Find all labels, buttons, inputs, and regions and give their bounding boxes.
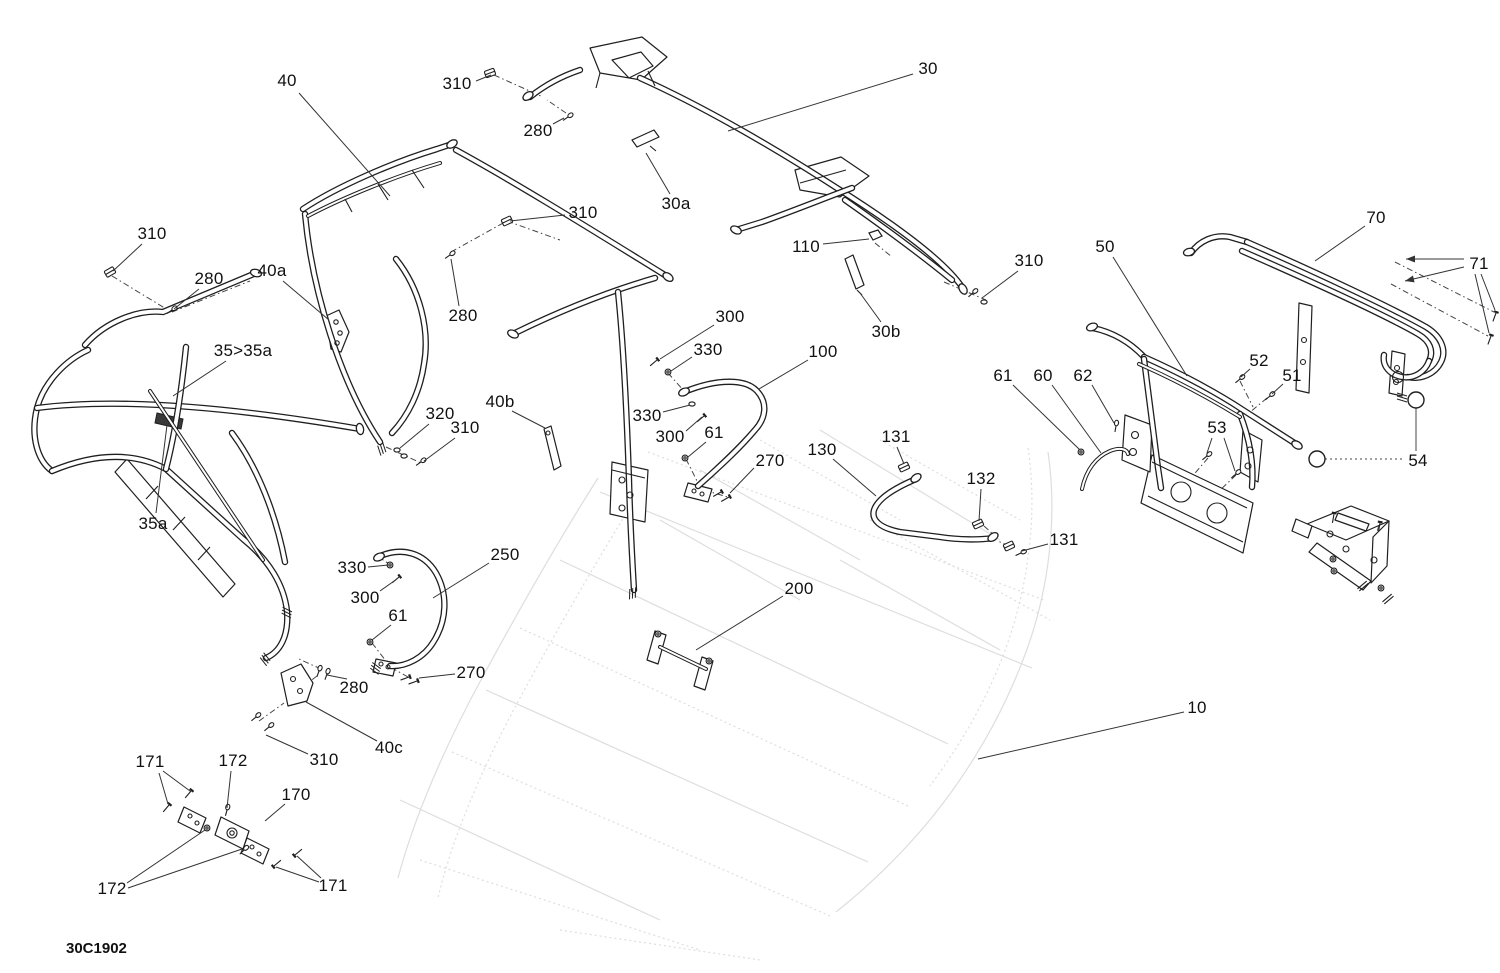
callout-170: 170	[282, 785, 311, 805]
leader-line	[476, 75, 491, 81]
callout-62: 62	[1073, 366, 1092, 386]
callout-310: 310	[310, 750, 339, 770]
callout-53: 53	[1207, 418, 1226, 438]
callout-30: 30	[918, 59, 937, 79]
leader-line	[730, 468, 754, 493]
callout-54: 54	[1408, 451, 1427, 471]
nut-fastener	[1078, 449, 1084, 455]
callout-51: 51	[1282, 366, 1301, 386]
callout-30a: 30a	[662, 194, 691, 214]
washer-fastener	[394, 448, 400, 452]
callout-300: 300	[656, 427, 685, 447]
leader-line	[368, 565, 388, 567]
callout-35-35a: 35>35a	[214, 341, 272, 361]
callout-280: 280	[524, 121, 553, 141]
callout-310: 310	[138, 224, 167, 244]
nut-fastener	[1331, 568, 1337, 574]
nut-fastener	[706, 658, 712, 664]
nut-fastener	[665, 369, 671, 375]
leader-line	[671, 357, 692, 371]
nut-fastener	[1378, 585, 1384, 591]
leader-line	[1405, 267, 1464, 281]
leader-line	[978, 712, 1184, 759]
leader-line	[163, 771, 190, 791]
bolt-fastener	[1230, 469, 1242, 480]
callout-270: 270	[457, 663, 486, 683]
leader-arrowhead	[1405, 276, 1415, 283]
bolt-fastener	[323, 668, 331, 680]
callout-270: 270	[756, 451, 785, 471]
leader-line	[979, 489, 981, 521]
callout-300: 300	[716, 307, 745, 327]
callout-330: 330	[338, 558, 367, 578]
callout-61: 61	[993, 366, 1012, 386]
leader-line	[1475, 274, 1489, 333]
leader-arrowhead	[1406, 256, 1415, 263]
leader-line	[419, 674, 455, 678]
bolt-fastener	[562, 112, 574, 122]
callout-131: 131	[882, 427, 911, 447]
callout-10: 10	[1187, 698, 1206, 718]
parts-diagram-page: 30C1902 403102803030a31011031030b2803102…	[0, 0, 1500, 973]
screw-fastener	[408, 678, 419, 686]
clamp-fastener	[1003, 541, 1015, 551]
leader-line	[1272, 384, 1283, 394]
callout-310: 310	[443, 74, 472, 94]
callout-35a: 35a	[139, 514, 168, 534]
callout-200: 200	[785, 579, 814, 599]
cap-54	[1309, 451, 1325, 467]
ghost-chassis	[398, 430, 1052, 960]
leader-line	[451, 259, 459, 306]
bolt-fastener	[1113, 420, 1119, 432]
leader-line	[297, 856, 321, 878]
leader-line	[663, 405, 690, 412]
tube-frames	[34, 70, 1443, 669]
pin-fastener	[1383, 594, 1394, 604]
callout-280: 280	[340, 678, 369, 698]
callout-310: 310	[1015, 251, 1044, 271]
callout-280: 280	[449, 306, 478, 326]
callout-330: 330	[633, 406, 662, 426]
leader-line	[266, 735, 308, 754]
leader-line	[553, 118, 564, 124]
leader-line	[380, 579, 397, 591]
screw-fastener	[1491, 311, 1499, 322]
screw-fastener	[720, 494, 731, 503]
leader-line	[1052, 385, 1101, 453]
leader-line	[510, 215, 565, 221]
callout-310: 310	[451, 418, 480, 438]
callout-310: 310	[569, 203, 598, 223]
leader-line	[1481, 274, 1495, 310]
callout-171: 171	[319, 876, 348, 896]
callout-61: 61	[704, 423, 723, 443]
hatched-tube-tip	[281, 607, 292, 618]
callout-40c: 40c	[375, 738, 403, 758]
leader-line	[512, 411, 545, 428]
screw-fastener	[161, 803, 171, 814]
callout-172: 172	[98, 879, 127, 899]
diagram-code: 30C1902	[66, 940, 127, 957]
callout-250: 250	[491, 545, 520, 565]
callout-131: 131	[1050, 530, 1079, 550]
leader-line	[982, 271, 1018, 298]
washer-fastener	[401, 454, 407, 458]
callout-40b: 40b	[486, 392, 515, 412]
leader-line	[833, 459, 876, 496]
leader-line	[400, 424, 429, 448]
leader-line	[1207, 438, 1212, 453]
leader-line	[265, 804, 285, 821]
leader-line	[227, 771, 231, 808]
leader-line	[306, 702, 377, 741]
leader-line	[897, 447, 904, 464]
leader-line	[1224, 438, 1235, 471]
leader-line	[1092, 385, 1114, 423]
leader-line	[159, 773, 168, 804]
callout-52: 52	[1249, 351, 1268, 371]
callout-130: 130	[808, 440, 837, 460]
leader-line	[1315, 226, 1365, 261]
callout-110: 110	[792, 237, 820, 257]
nut-fastener	[1330, 556, 1336, 562]
leader-line	[424, 438, 455, 461]
leader-line	[372, 625, 391, 640]
leader-line	[728, 74, 913, 131]
callout-60: 60	[1033, 366, 1052, 386]
callout-132: 132	[967, 469, 996, 489]
clip-110	[869, 230, 882, 240]
callout-172: 172	[219, 751, 248, 771]
callout-30b: 30b	[872, 322, 901, 342]
callout-40a: 40a	[258, 261, 287, 281]
bolt-fastener	[1234, 374, 1246, 385]
leader-line	[646, 153, 670, 194]
callout-61: 61	[388, 606, 407, 626]
bolt-fastener	[263, 722, 275, 733]
callout-300: 300	[351, 588, 380, 608]
leader-line	[688, 442, 706, 457]
screw-fastener	[293, 847, 304, 857]
clamp-fastener	[484, 68, 496, 78]
clamp-fastener	[104, 267, 116, 278]
screw-fastener	[649, 358, 660, 368]
callout-330: 330	[694, 340, 723, 360]
leader-line	[823, 239, 869, 244]
bolt-fastener	[415, 457, 427, 467]
screw-fastener	[712, 489, 723, 498]
leader-line	[686, 417, 702, 431]
clamp-fastener	[972, 519, 984, 529]
callout-100: 100	[809, 342, 838, 362]
leader-line	[276, 867, 319, 882]
leader-line	[696, 596, 783, 650]
leader-line	[860, 293, 881, 322]
leader-line	[299, 93, 390, 196]
nut-fastener	[682, 455, 688, 461]
cap-54	[1408, 392, 1424, 408]
nut-fastener	[655, 631, 661, 637]
leader-line	[128, 849, 242, 888]
callout-71: 71	[1469, 254, 1488, 274]
leader-line	[759, 360, 808, 389]
callout-280: 280	[195, 269, 224, 289]
callout-50: 50	[1095, 237, 1114, 257]
bolt-fastener	[444, 250, 456, 260]
leader-line	[1022, 544, 1048, 551]
callout-171: 171	[136, 752, 165, 772]
leader-line	[1013, 385, 1080, 450]
leader-line	[113, 244, 142, 271]
washer-fastener	[981, 300, 987, 304]
callout-70: 70	[1366, 208, 1385, 228]
parts-diagram-canvas	[0, 0, 1500, 973]
callout-40: 40	[277, 71, 296, 91]
